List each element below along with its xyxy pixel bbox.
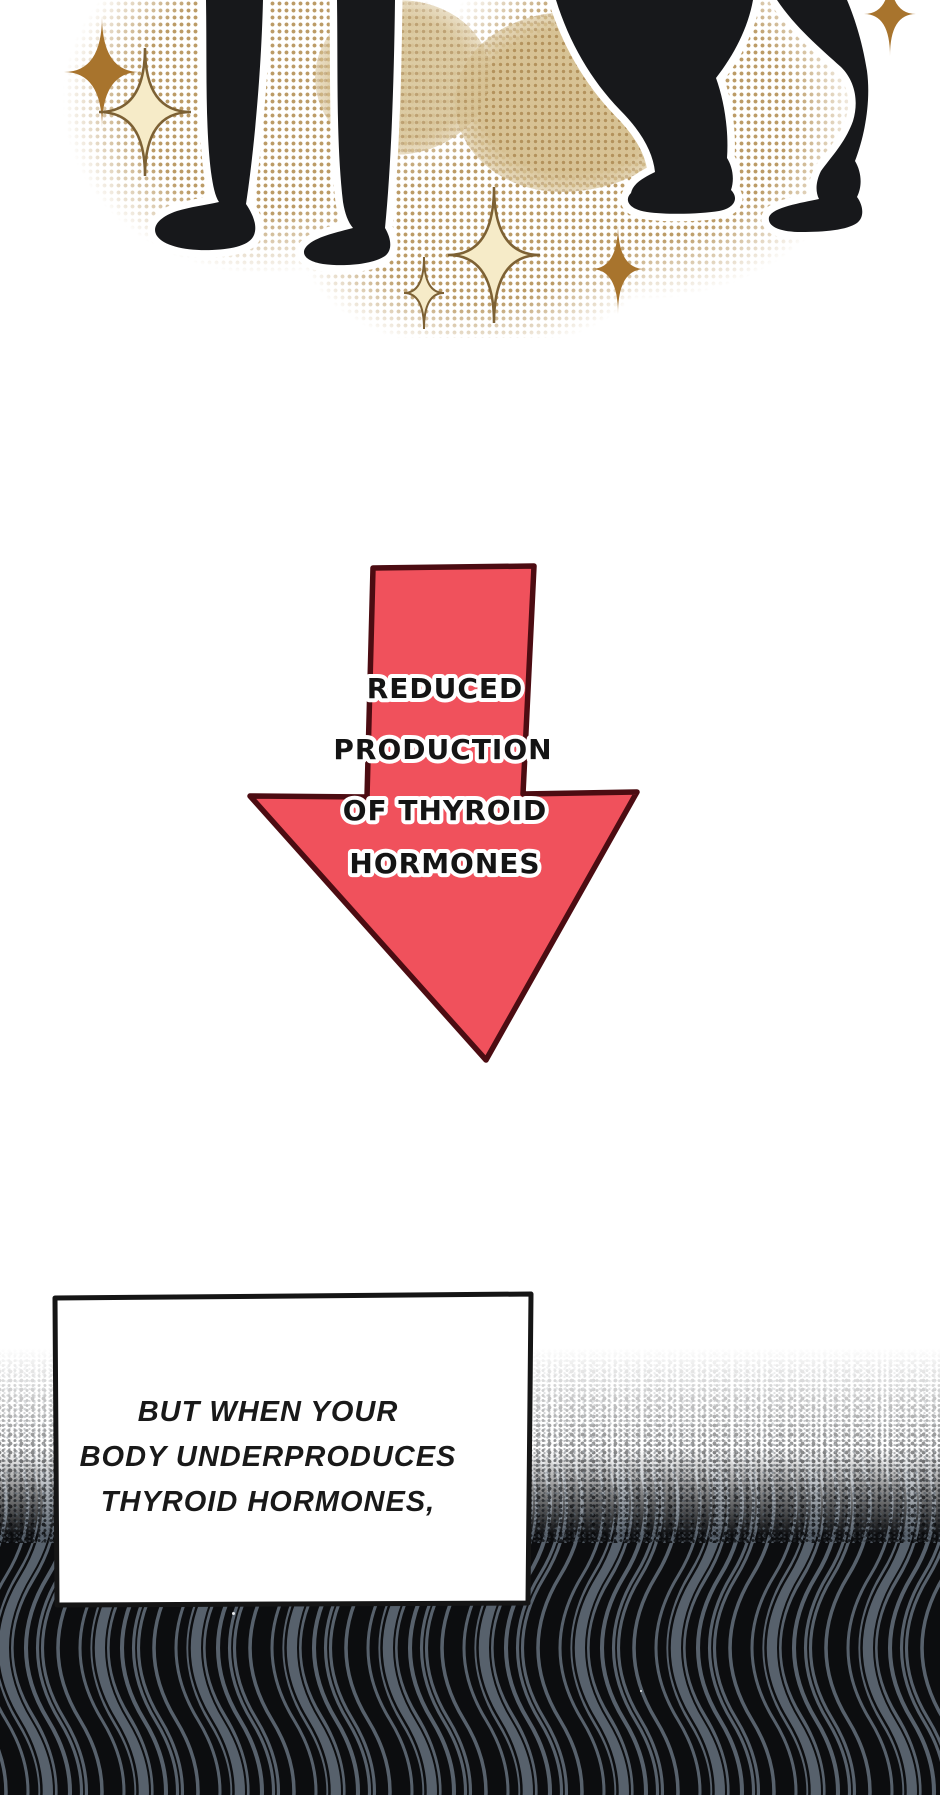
caption-text-line: THYROID HORMONES,: [68, 1480, 468, 1525]
sparkle-star-gold-small-icon: [591, 224, 645, 314]
comic-panel: REDUCED PRODUCTION OF THYROID HORMONES: [0, 0, 940, 1795]
dog-front-leg-right: [304, 0, 395, 265]
dog-front-leg-left: [155, 0, 263, 250]
bottom-art-scene: BUT WHEN YOUR BODY UNDERPRODUCES THYROID…: [0, 1290, 940, 1795]
caption-box: [0, 1290, 940, 1795]
dog-hind-leg-right: [769, 0, 868, 232]
sparkle-star-cream-small-icon: [404, 257, 444, 329]
sparkle-star-cream-large-icon: [448, 187, 540, 323]
down-arrow-graphic: REDUCED PRODUCTION OF THYROID HORMONES: [235, 545, 650, 1075]
arrow-text-line: OF THYROID: [343, 794, 548, 827]
arrow-text-line: PRODUCTION: [333, 733, 552, 766]
arrow-text-line: REDUCED: [367, 672, 524, 705]
caption-text: BUT WHEN YOUR BODY UNDERPRODUCES THYROID…: [68, 1390, 468, 1525]
top-art-scene: [0, 0, 940, 340]
sparkle-star-gold-corner-icon: [864, 0, 916, 56]
caption-text-line: BUT WHEN YOUR: [68, 1390, 468, 1435]
dog-hind-leg-left: [556, 0, 753, 214]
legs-and-sparkles-art: [0, 0, 940, 340]
caption-text-line: BODY UNDERPRODUCES: [68, 1435, 468, 1480]
arrow-text-line: HORMONES: [349, 847, 540, 880]
